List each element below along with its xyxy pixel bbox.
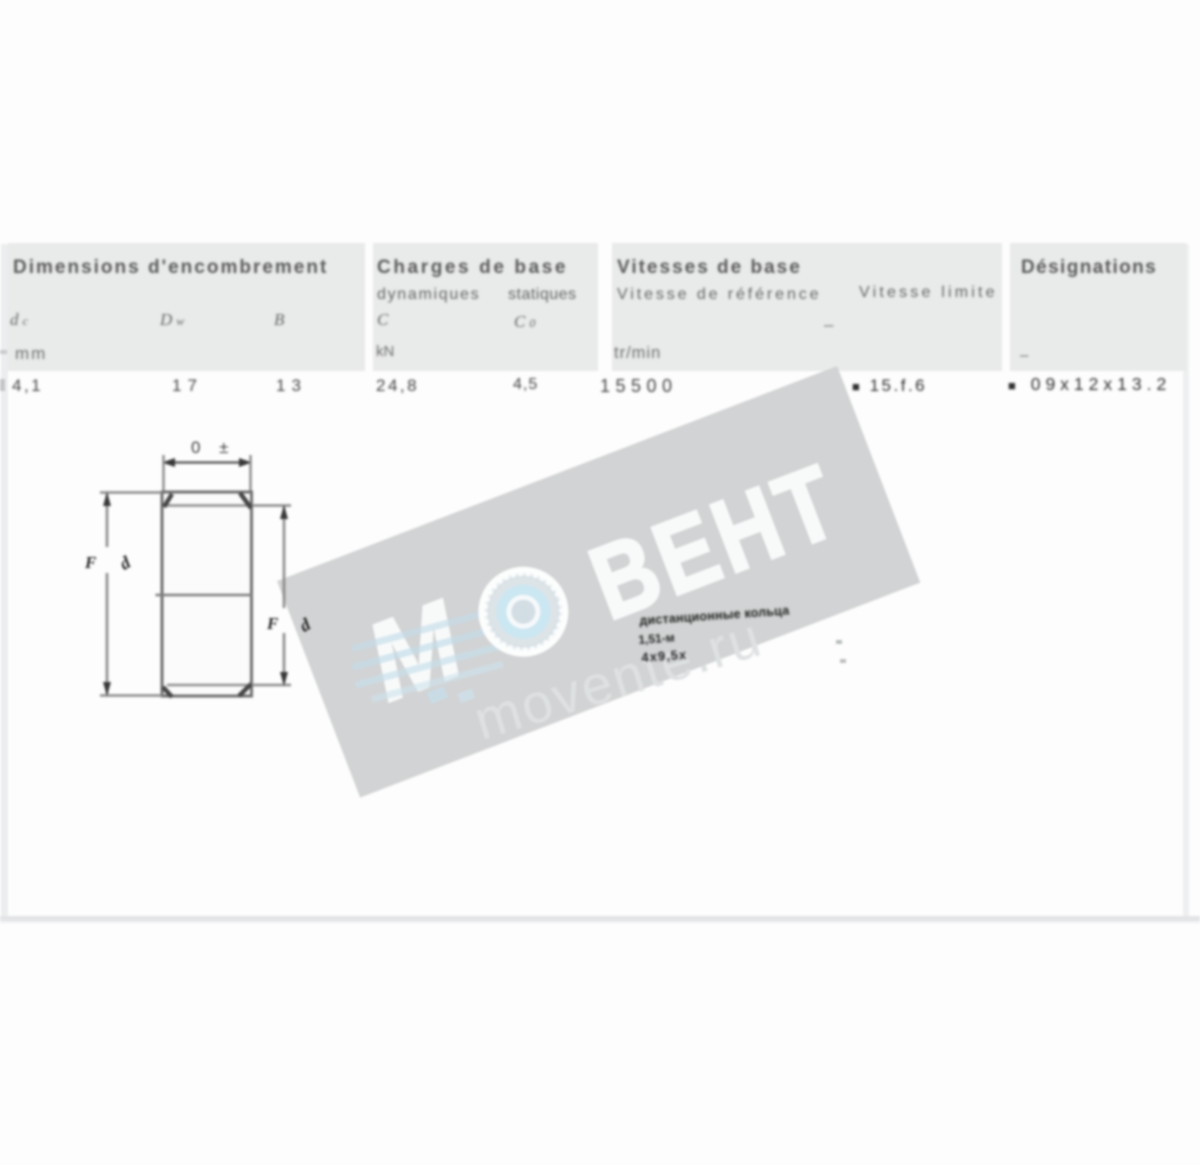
svg-text:0 ±: 0 ±: [191, 438, 236, 457]
svg-text:F: F: [84, 553, 97, 572]
svg-text:F: F: [266, 614, 279, 633]
svg-text:d: d: [116, 552, 135, 574]
svg-text:d: d: [296, 614, 315, 636]
